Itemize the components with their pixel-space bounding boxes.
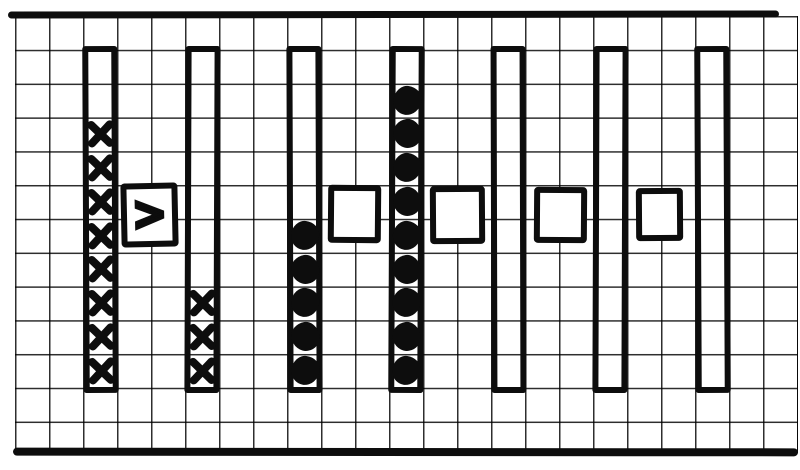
x-mark — [86, 255, 116, 284]
bar-1 — [82, 46, 119, 393]
bar-7 — [694, 46, 731, 393]
bar-3 — [286, 46, 322, 393]
bar-2 — [184, 46, 220, 393]
x-mark — [86, 221, 116, 250]
dot-mark — [289, 354, 320, 386]
dot-mark — [289, 287, 320, 319]
x-mark — [85, 119, 115, 148]
comparison-box-3 — [430, 186, 485, 244]
x-mark — [187, 356, 217, 385]
dot-mark — [390, 253, 422, 286]
dot-mark — [391, 152, 422, 184]
bar-6 — [592, 46, 628, 393]
comparison-box-2 — [328, 185, 382, 243]
bar-5 — [491, 46, 527, 393]
x-mark — [85, 153, 115, 182]
comparison-box-4 — [534, 187, 587, 243]
greater-than-symbol: > — [131, 190, 167, 238]
dot-mark — [390, 320, 422, 353]
x-mark — [187, 322, 217, 351]
x-mark — [187, 288, 217, 317]
bar-4 — [388, 46, 425, 393]
dot-mark — [390, 287, 421, 319]
comparison-box-1: > — [120, 182, 178, 247]
x-mark — [86, 356, 116, 385]
bottom-border-line — [13, 448, 798, 457]
worksheet-page: > — [0, 0, 800, 470]
top-border-line — [8, 10, 779, 18]
comparison-box-5 — [636, 188, 683, 241]
x-mark — [86, 322, 116, 351]
dot-mark — [390, 354, 421, 386]
dot-mark — [289, 219, 320, 251]
dot-mark — [391, 117, 423, 150]
x-mark — [85, 187, 115, 216]
x-mark — [86, 288, 116, 317]
dot-mark — [391, 84, 422, 116]
dot-mark — [391, 219, 422, 251]
dot-mark — [289, 320, 321, 353]
dot-mark — [391, 185, 423, 218]
dot-mark — [289, 253, 321, 286]
